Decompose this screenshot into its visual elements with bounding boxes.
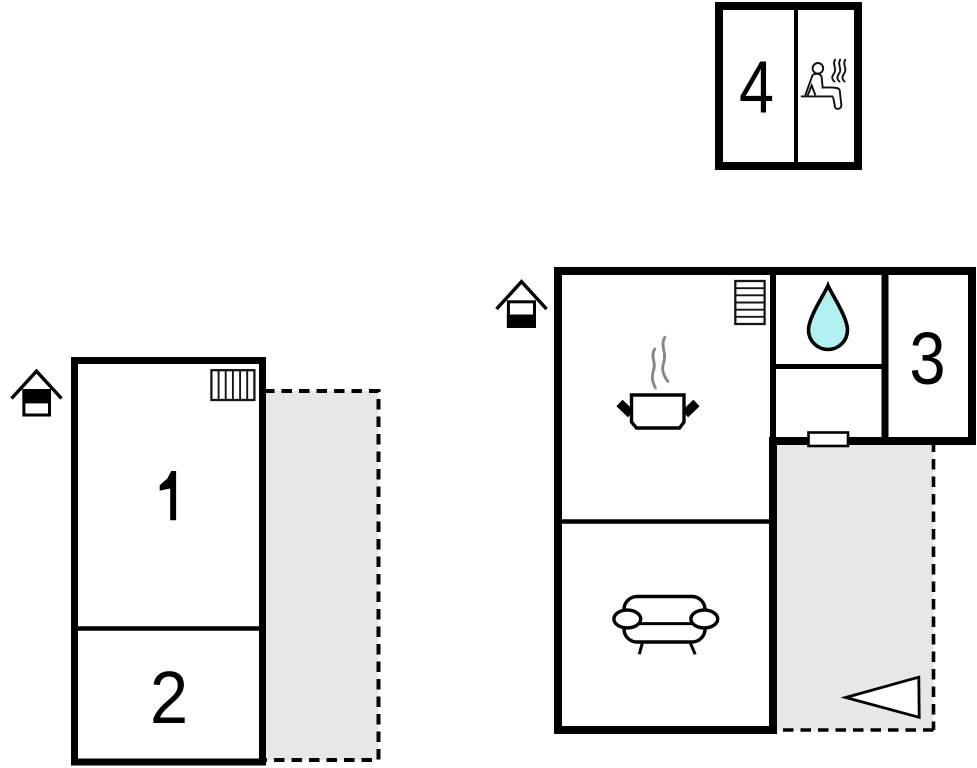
svg-text:3: 3 — [909, 317, 945, 400]
svg-text:4: 4 — [739, 46, 774, 129]
svg-text:2: 2 — [150, 657, 188, 740]
